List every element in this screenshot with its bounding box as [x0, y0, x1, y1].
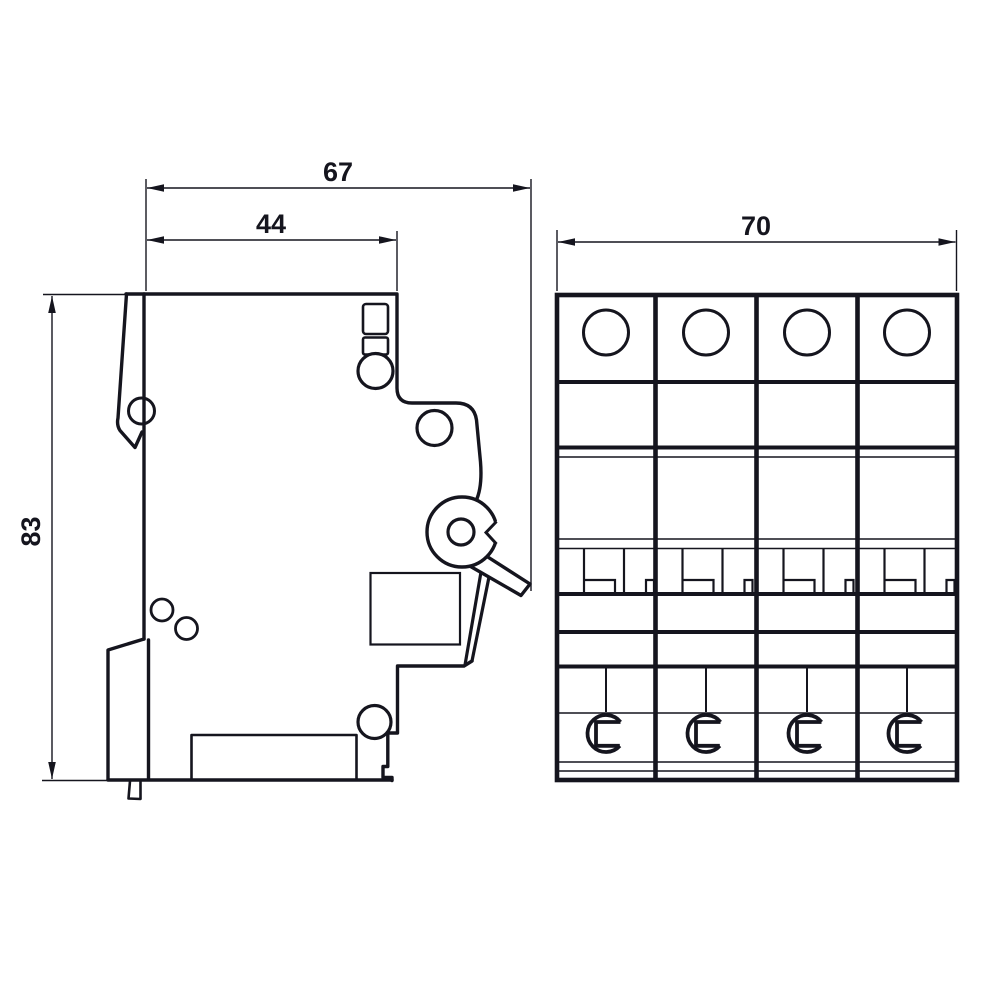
dimension-width: 70	[557, 211, 957, 291]
toggle-knob-hub	[448, 519, 474, 545]
dimension-label-70: 70	[741, 211, 771, 241]
top-terminal-slot	[363, 304, 388, 334]
bottom-terminal-screw	[888, 715, 921, 752]
bottom-terminal-screw	[687, 715, 720, 752]
dimension-label-83: 83	[16, 516, 46, 546]
handle-shaft-line	[472, 577, 489, 661]
technical-drawing-page: 67 44 83	[0, 0, 1000, 1000]
bottom-terminal-screw-hole	[358, 706, 391, 739]
top-terminal-opening	[584, 310, 629, 355]
label-recess	[371, 573, 461, 645]
arrowhead-down-icon	[48, 762, 56, 779]
dimension-label-44: 44	[256, 209, 286, 239]
bottom-terminal-screw	[788, 715, 821, 752]
toggle-slot	[784, 549, 854, 595]
arrowhead-left-icon	[147, 184, 164, 192]
arrowhead-left-icon	[147, 236, 164, 244]
dimension-label-67: 67	[323, 157, 353, 187]
clip-foot	[129, 781, 141, 799]
screw-slot-hook	[696, 722, 721, 746]
rivet-hole	[176, 618, 198, 640]
arrowhead-right-icon	[513, 184, 530, 192]
top-terminal-screw-hole	[358, 354, 393, 389]
slot-tab	[646, 580, 654, 594]
top-terminal-opening	[684, 310, 729, 355]
rivet-hole	[151, 599, 173, 621]
toggle-handle-front	[683, 580, 714, 594]
front-view: 70	[557, 211, 957, 780]
screw-slot-hook	[897, 722, 922, 746]
screw-slot-hook	[797, 722, 822, 746]
toggle-slot	[584, 549, 654, 595]
slot-tab	[846, 580, 854, 594]
arrowhead-right-icon	[939, 238, 956, 246]
housing-right-lower-outline	[383, 661, 472, 781]
screw-slot-hook	[596, 722, 621, 746]
bottom-terminal-screw	[587, 715, 620, 752]
toggle-handle-front	[784, 580, 815, 594]
arrowhead-left-icon	[558, 238, 575, 246]
circuit-breaker-dimension-drawing: 67 44 83	[0, 0, 1000, 1000]
side-view: 67 44 83	[16, 157, 531, 799]
top-terminal-opening	[885, 310, 930, 355]
arrowhead-right-icon	[379, 236, 396, 244]
housing-hole	[417, 411, 452, 446]
toggle-slot	[885, 549, 955, 595]
din-clip-lower-slider	[108, 639, 149, 780]
toggle-slot	[683, 549, 753, 595]
dimension-body-depth: 44	[147, 209, 397, 291]
slot-tab	[947, 580, 955, 594]
bottom-terminal-block	[192, 735, 357, 780]
clip-hole	[129, 398, 155, 424]
toggle-handle-front	[885, 580, 916, 594]
arrowhead-up-icon	[48, 296, 56, 313]
toggle-handle-front	[584, 580, 615, 594]
housing-top-outline	[126, 294, 481, 501]
slot-tab	[745, 580, 753, 594]
top-terminal-opening	[785, 310, 830, 355]
